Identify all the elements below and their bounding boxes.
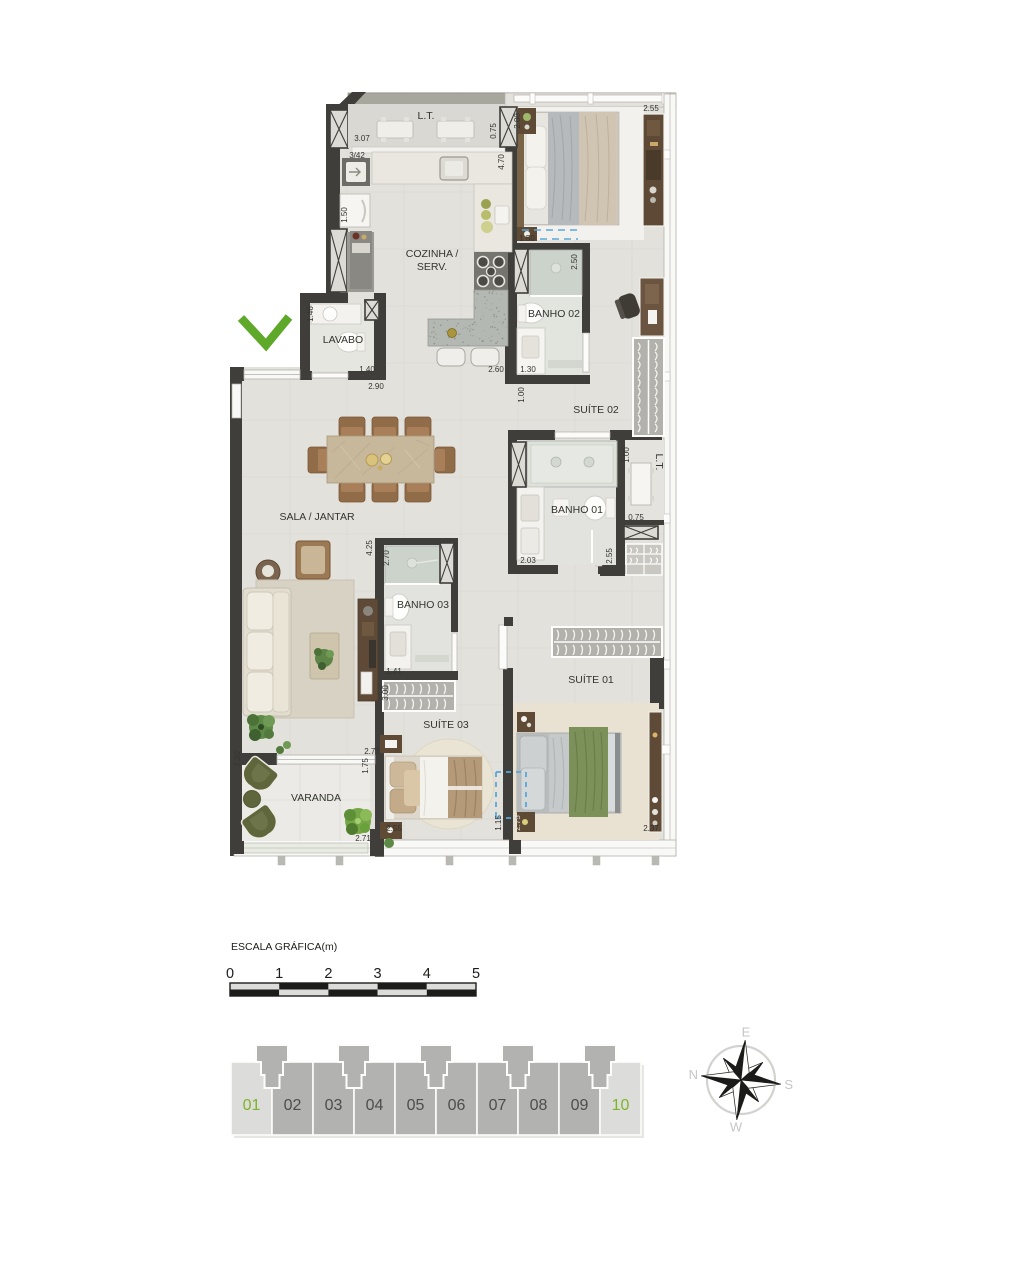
svg-text:2.55: 2.55 xyxy=(605,548,614,564)
svg-text:2.60: 2.60 xyxy=(488,365,504,374)
svg-text:2.50: 2.50 xyxy=(570,254,579,270)
svg-text:W: W xyxy=(730,1120,743,1135)
svg-text:01: 01 xyxy=(243,1097,261,1114)
svg-text:N: N xyxy=(689,1067,698,1082)
svg-text:1.40: 1.40 xyxy=(359,365,375,374)
svg-text:0.75: 0.75 xyxy=(489,123,498,139)
svg-text:02: 02 xyxy=(284,1097,302,1114)
svg-text:2.90: 2.90 xyxy=(368,382,384,391)
svg-text:03: 03 xyxy=(325,1097,343,1114)
svg-text:L.T.: L.T. xyxy=(418,110,435,122)
svg-text:1.50: 1.50 xyxy=(519,234,535,243)
svg-text:SALA / JANTAR: SALA / JANTAR xyxy=(279,511,354,523)
svg-text:4.70: 4.70 xyxy=(497,154,506,170)
svg-text:SUÍTE 02: SUÍTE 02 xyxy=(573,403,619,416)
svg-text:3.07: 3.07 xyxy=(354,134,370,143)
svg-text:2.75: 2.75 xyxy=(513,815,522,831)
svg-text:06: 06 xyxy=(448,1097,466,1114)
svg-text:E: E xyxy=(742,1024,751,1039)
svg-text:BANHO 03: BANHO 03 xyxy=(397,599,449,611)
svg-text:10: 10 xyxy=(612,1097,630,1114)
svg-text:2.55: 2.55 xyxy=(386,824,402,833)
svg-text:BANHO 02: BANHO 02 xyxy=(528,308,580,320)
svg-text:S: S xyxy=(784,1077,793,1092)
svg-text:1.00: 1.00 xyxy=(517,387,526,403)
svg-text:4.25: 4.25 xyxy=(365,540,374,556)
svg-text:1.41: 1.41 xyxy=(386,667,402,676)
svg-text:2.03: 2.03 xyxy=(520,556,536,565)
svg-text:07: 07 xyxy=(489,1097,507,1114)
svg-text:3: 3 xyxy=(374,966,382,982)
svg-text:SERV.: SERV. xyxy=(417,261,447,273)
svg-text:SUÍTE 01: SUÍTE 01 xyxy=(568,673,614,686)
svg-text:2.80: 2.80 xyxy=(513,113,522,129)
svg-text:1: 1 xyxy=(275,966,283,982)
svg-text:2.55: 2.55 xyxy=(643,104,659,113)
svg-text:4: 4 xyxy=(423,966,431,982)
svg-text:2.37: 2.37 xyxy=(643,824,659,833)
svg-text:09: 09 xyxy=(571,1097,589,1114)
svg-text:04: 04 xyxy=(366,1097,384,1114)
svg-text:1.46: 1.46 xyxy=(306,306,315,322)
svg-text:3.00: 3.00 xyxy=(381,685,390,701)
svg-text:ESCALA GRÁFICA(m): ESCALA GRÁFICA(m) xyxy=(231,940,337,953)
svg-text:2.71: 2.71 xyxy=(355,834,371,843)
svg-text:2.70: 2.70 xyxy=(382,550,391,566)
svg-text:LAVABO: LAVABO xyxy=(323,334,363,346)
svg-text:3/42: 3/42 xyxy=(349,151,365,160)
svg-text:0: 0 xyxy=(226,966,234,982)
svg-text:5: 5 xyxy=(472,966,480,982)
svg-text:1.15: 1.15 xyxy=(494,815,503,831)
svg-text:1.30: 1.30 xyxy=(520,365,536,374)
svg-text:BANHO 01: BANHO 01 xyxy=(551,504,603,516)
svg-text:1.75: 1.75 xyxy=(361,758,370,774)
svg-text:2: 2 xyxy=(324,966,332,982)
svg-text:1.00: 1.00 xyxy=(622,447,631,463)
svg-text:VARANDA: VARANDA xyxy=(291,792,341,804)
svg-text:0.75: 0.75 xyxy=(628,513,644,522)
svg-text:1.50: 1.50 xyxy=(340,207,349,223)
svg-text:COZINHA /: COZINHA / xyxy=(406,248,459,260)
svg-text:7.30: 7.30 xyxy=(233,751,242,767)
svg-text:05: 05 xyxy=(407,1097,425,1114)
svg-text:08: 08 xyxy=(530,1097,548,1114)
svg-text:SUÍTE 03: SUÍTE 03 xyxy=(423,718,469,731)
svg-text:2.77: 2.77 xyxy=(364,747,380,756)
svg-text:L.T.: L.T. xyxy=(653,454,665,471)
